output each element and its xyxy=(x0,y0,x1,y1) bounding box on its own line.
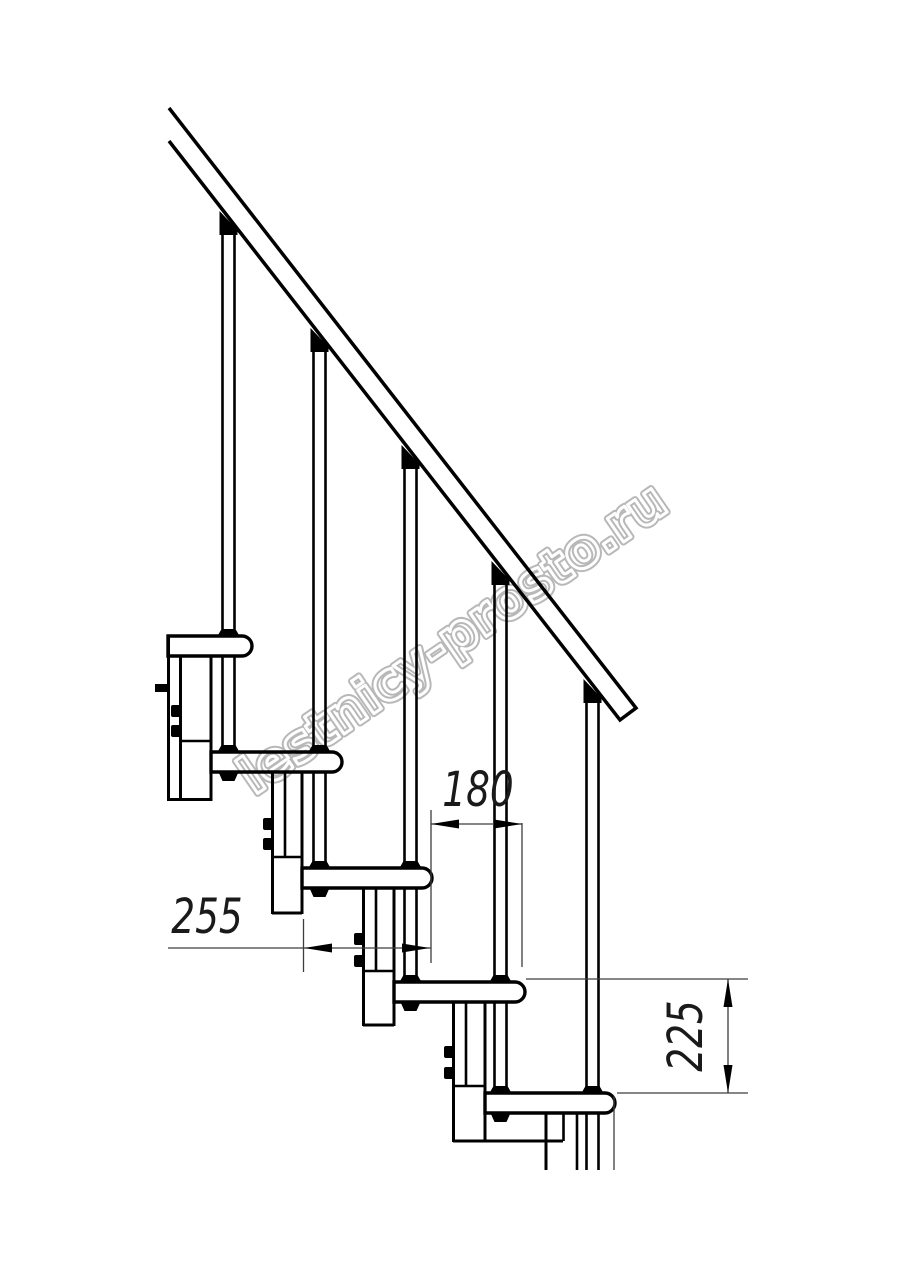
column-3-outline xyxy=(363,888,394,1026)
watermark-inner-text: lestnicy-prosto.ru xyxy=(227,471,677,806)
dimension-255-arrow-left xyxy=(304,944,332,953)
rod-4-under-nut xyxy=(491,1113,511,1122)
column-3-bolt-lower xyxy=(354,955,364,967)
column-1-bolt-lower xyxy=(171,725,181,737)
support-column-1 xyxy=(168,656,211,801)
rod-2-under-nut xyxy=(310,888,330,897)
dimension-225-arrow-down xyxy=(724,1065,733,1093)
column-3-bolt-upper xyxy=(354,933,364,945)
column-4-bolt-upper xyxy=(444,1046,454,1058)
support-column-3 xyxy=(354,888,394,1026)
baluster-rod-3 xyxy=(400,445,422,1011)
rod-1-foot-tread-2 xyxy=(218,745,240,752)
column-4-joint-line xyxy=(453,1002,485,1086)
tread-1 xyxy=(168,636,252,656)
column-2-bolt-upper xyxy=(263,818,273,830)
dimension-180-lines xyxy=(431,810,522,967)
dimension-180-label: 180 xyxy=(442,763,513,819)
watermark: lestnicy-prosto.ru lestnicy-prosto.ru xyxy=(227,471,677,806)
rod-4-foot-tread-5 xyxy=(490,1086,512,1093)
baluster-rod-5 xyxy=(582,679,604,1170)
tread-4 xyxy=(394,982,525,1002)
rod-3-nut-tread-3 xyxy=(400,861,422,868)
column-4-bolt-lower xyxy=(444,1067,454,1079)
dimension-225-arrow-up xyxy=(724,979,733,1007)
drawing-canvas: lestnicy-prosto.ru lestnicy-prosto.ru xyxy=(0,0,914,1280)
baluster-rod-2 xyxy=(309,328,331,897)
dimension-180-arrow-left xyxy=(431,820,459,829)
handrail-outline xyxy=(169,108,636,720)
dimension-180-arrow-right xyxy=(494,820,522,829)
dimension-255-label: 255 xyxy=(171,890,242,946)
tread-5 xyxy=(485,1093,615,1113)
handrail xyxy=(169,108,636,720)
staircase-technical-drawing: lestnicy-prosto.ru lestnicy-prosto.ru xyxy=(0,0,914,1280)
dimension-225-label: 225 xyxy=(659,1000,715,1071)
baluster-rod-1 xyxy=(218,211,240,781)
rod-3-under-nut xyxy=(401,1002,421,1011)
dimension-255: 255 xyxy=(168,890,431,972)
rod-2-foot-tread-3 xyxy=(309,861,331,868)
dimension-180: 180 xyxy=(431,763,522,967)
rod-5-nut-tread-5 xyxy=(582,1086,604,1093)
rod-3-foot-tread-4 xyxy=(400,975,422,982)
rod-4-nut-tread-4 xyxy=(490,975,512,982)
tread-3 xyxy=(302,868,432,888)
column-2-bolt-lower xyxy=(263,838,273,850)
column-bracket-tick xyxy=(155,684,169,692)
rod-1-nut-tread-1 xyxy=(218,629,240,636)
column-3-joint-line xyxy=(363,888,394,971)
column-1-bolt-upper xyxy=(171,705,181,717)
rod-1-under-nut xyxy=(219,772,239,781)
